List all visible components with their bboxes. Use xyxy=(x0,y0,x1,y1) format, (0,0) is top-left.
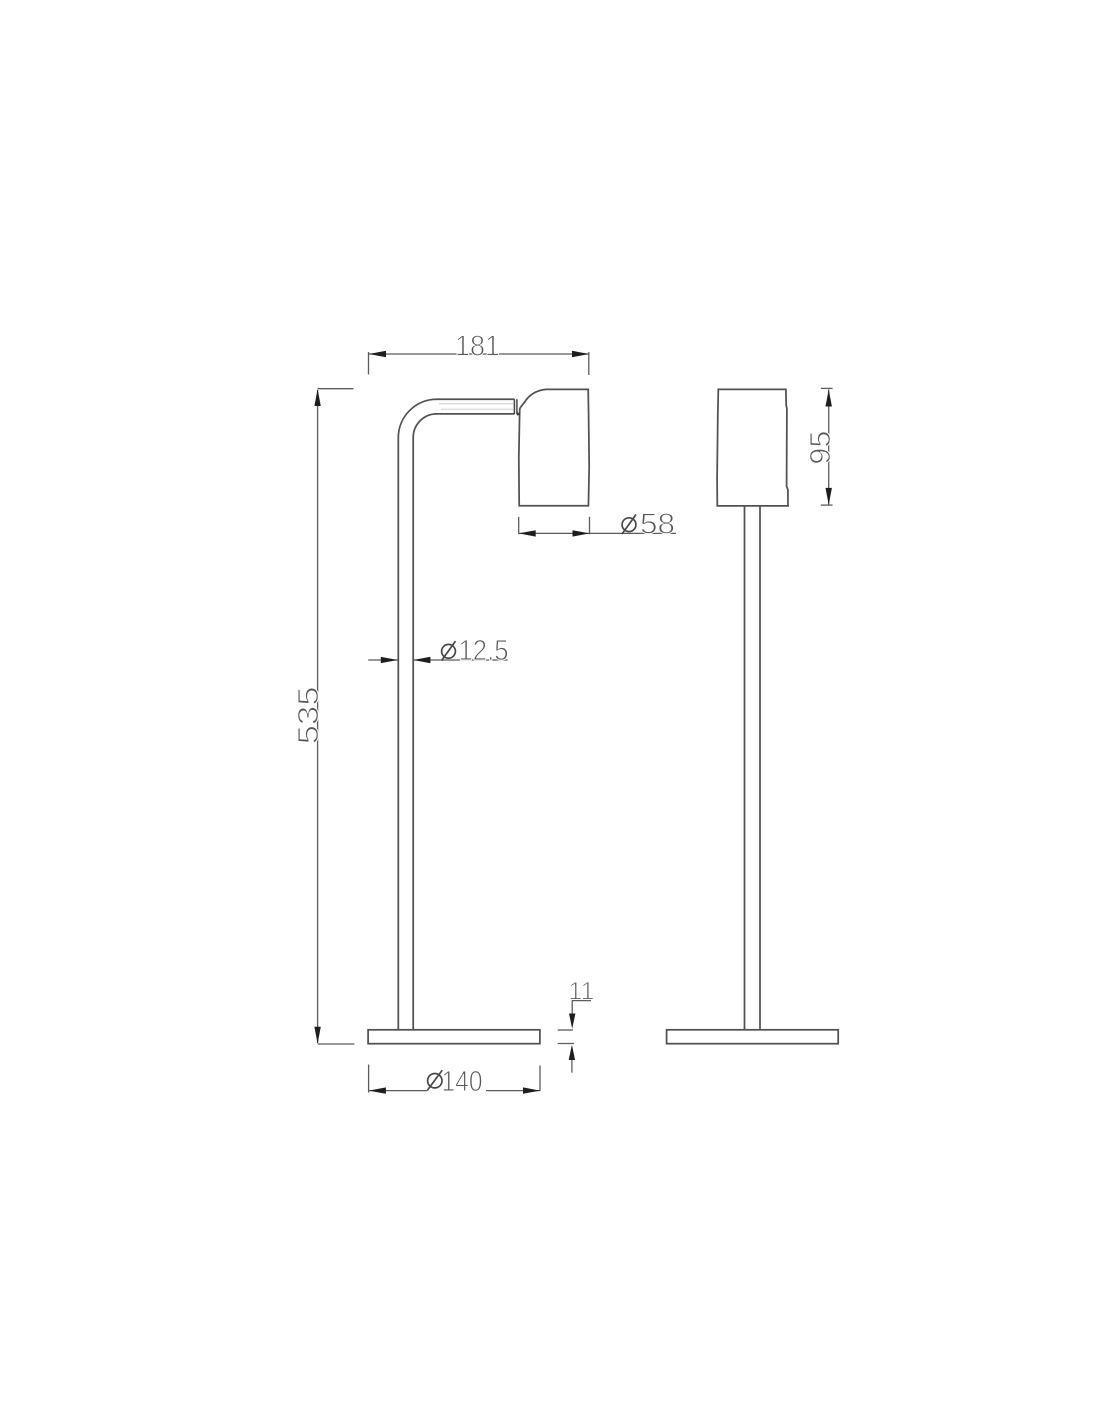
svg-text:535: 535 xyxy=(293,686,325,744)
svg-text:181: 181 xyxy=(455,331,500,363)
svg-text:95: 95 xyxy=(805,431,837,465)
svg-text:58: 58 xyxy=(640,509,675,541)
svg-text:140: 140 xyxy=(442,1066,483,1098)
svg-text:12.5: 12.5 xyxy=(459,635,509,667)
